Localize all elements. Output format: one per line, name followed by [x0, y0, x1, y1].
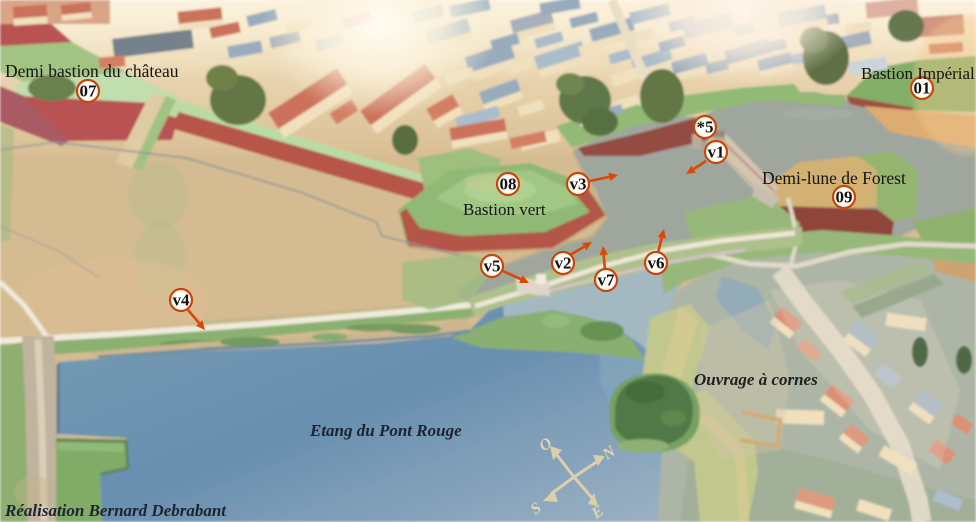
svg-text:08: 08: [500, 175, 517, 194]
svg-text:Réalisation Bernard Debrabant: Réalisation Bernard Debrabant: [4, 501, 227, 520]
svg-text:*5: *5: [697, 118, 714, 137]
svg-text:Ouvrage à cornes: Ouvrage à cornes: [694, 370, 818, 389]
svg-text:09: 09: [836, 188, 853, 207]
svg-text:Etang du Pont Rouge: Etang du Pont Rouge: [309, 421, 462, 440]
svg-text:v4: v4: [173, 291, 191, 310]
svg-text:v2: v2: [555, 254, 572, 273]
svg-text:v1: v1: [708, 143, 725, 162]
svg-text:v3: v3: [570, 175, 587, 194]
svg-text:Bastion vert: Bastion vert: [463, 200, 546, 219]
svg-text:Demi-lune de Forest: Demi-lune de Forest: [762, 168, 906, 188]
svg-text:Demi bastion du château: Demi bastion du château: [5, 61, 179, 81]
svg-text:v7: v7: [598, 271, 616, 290]
svg-text:Bastion Impérial: Bastion Impérial: [861, 64, 975, 83]
svg-text:v5: v5: [484, 257, 501, 276]
svg-text:v6: v6: [648, 254, 665, 273]
svg-text:07: 07: [80, 82, 98, 101]
